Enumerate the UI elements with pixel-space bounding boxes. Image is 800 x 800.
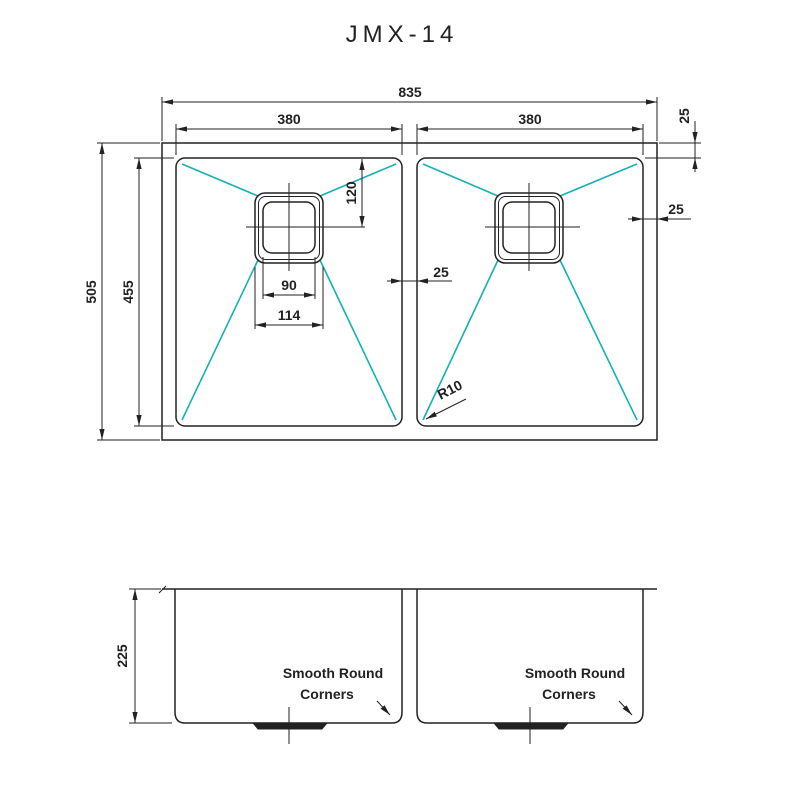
smooth-corners-left-line1: Smooth Round [283, 665, 383, 681]
corner-radius-label: R10 [435, 376, 465, 402]
dim-bowl-depth: 455 [120, 158, 174, 426]
smooth-corners-callout-left: Smooth Round Corners [283, 665, 390, 715]
dim-left-bowl-width-label: 380 [277, 111, 301, 127]
dim-drain-offset: 120 [343, 159, 362, 227]
slope-lines [182, 164, 637, 420]
dim-drain-outer-label: 114 [278, 307, 301, 323]
top-view: 835 380 380 505 455 [83, 84, 701, 440]
dim-divider-label: 25 [433, 264, 449, 280]
smooth-corners-right-line1: Smooth Round [525, 665, 625, 681]
front-right-drain-boss [494, 723, 568, 729]
dim-front-height-label: 225 [114, 644, 130, 668]
front-view: 225 Smooth Round Corners Smooth Round Co… [114, 586, 657, 744]
model-title: JMX-14 [346, 21, 459, 48]
dim-drain-inner-label: 90 [281, 277, 297, 293]
dim-left-bowl-width: 380 [176, 111, 402, 155]
dim-overall-width-label: 835 [398, 84, 422, 100]
dim-overall-depth-label: 505 [83, 280, 99, 304]
front-right-bowl [417, 589, 643, 723]
dim-divider: 25 [387, 264, 452, 281]
dim-overall-width: 835 [162, 84, 657, 141]
dim-drain-offset-label: 120 [343, 181, 359, 205]
right-drain [485, 183, 580, 271]
dim-rim-right: 25 [628, 201, 691, 219]
dim-bowl-depth-label: 455 [120, 280, 136, 304]
smooth-corners-left-line2: Corners [300, 686, 354, 702]
dim-rim-top: 25 [645, 108, 701, 172]
front-left-bowl [175, 589, 402, 723]
dim-right-bowl-width-label: 380 [518, 111, 542, 127]
corner-radius-callout: R10 [426, 376, 466, 419]
dim-front-height: 225 [114, 589, 172, 723]
dim-rim-right-label: 25 [668, 201, 684, 217]
dim-right-bowl-width: 380 [417, 111, 643, 155]
front-left-drain-boss [253, 723, 327, 729]
smooth-corners-callout-right: Smooth Round Corners [525, 665, 632, 715]
sink-technical-drawing: JMX-14 [0, 0, 800, 800]
smooth-corners-right-line2: Corners [542, 686, 596, 702]
dim-rim-top-label: 25 [676, 108, 692, 124]
